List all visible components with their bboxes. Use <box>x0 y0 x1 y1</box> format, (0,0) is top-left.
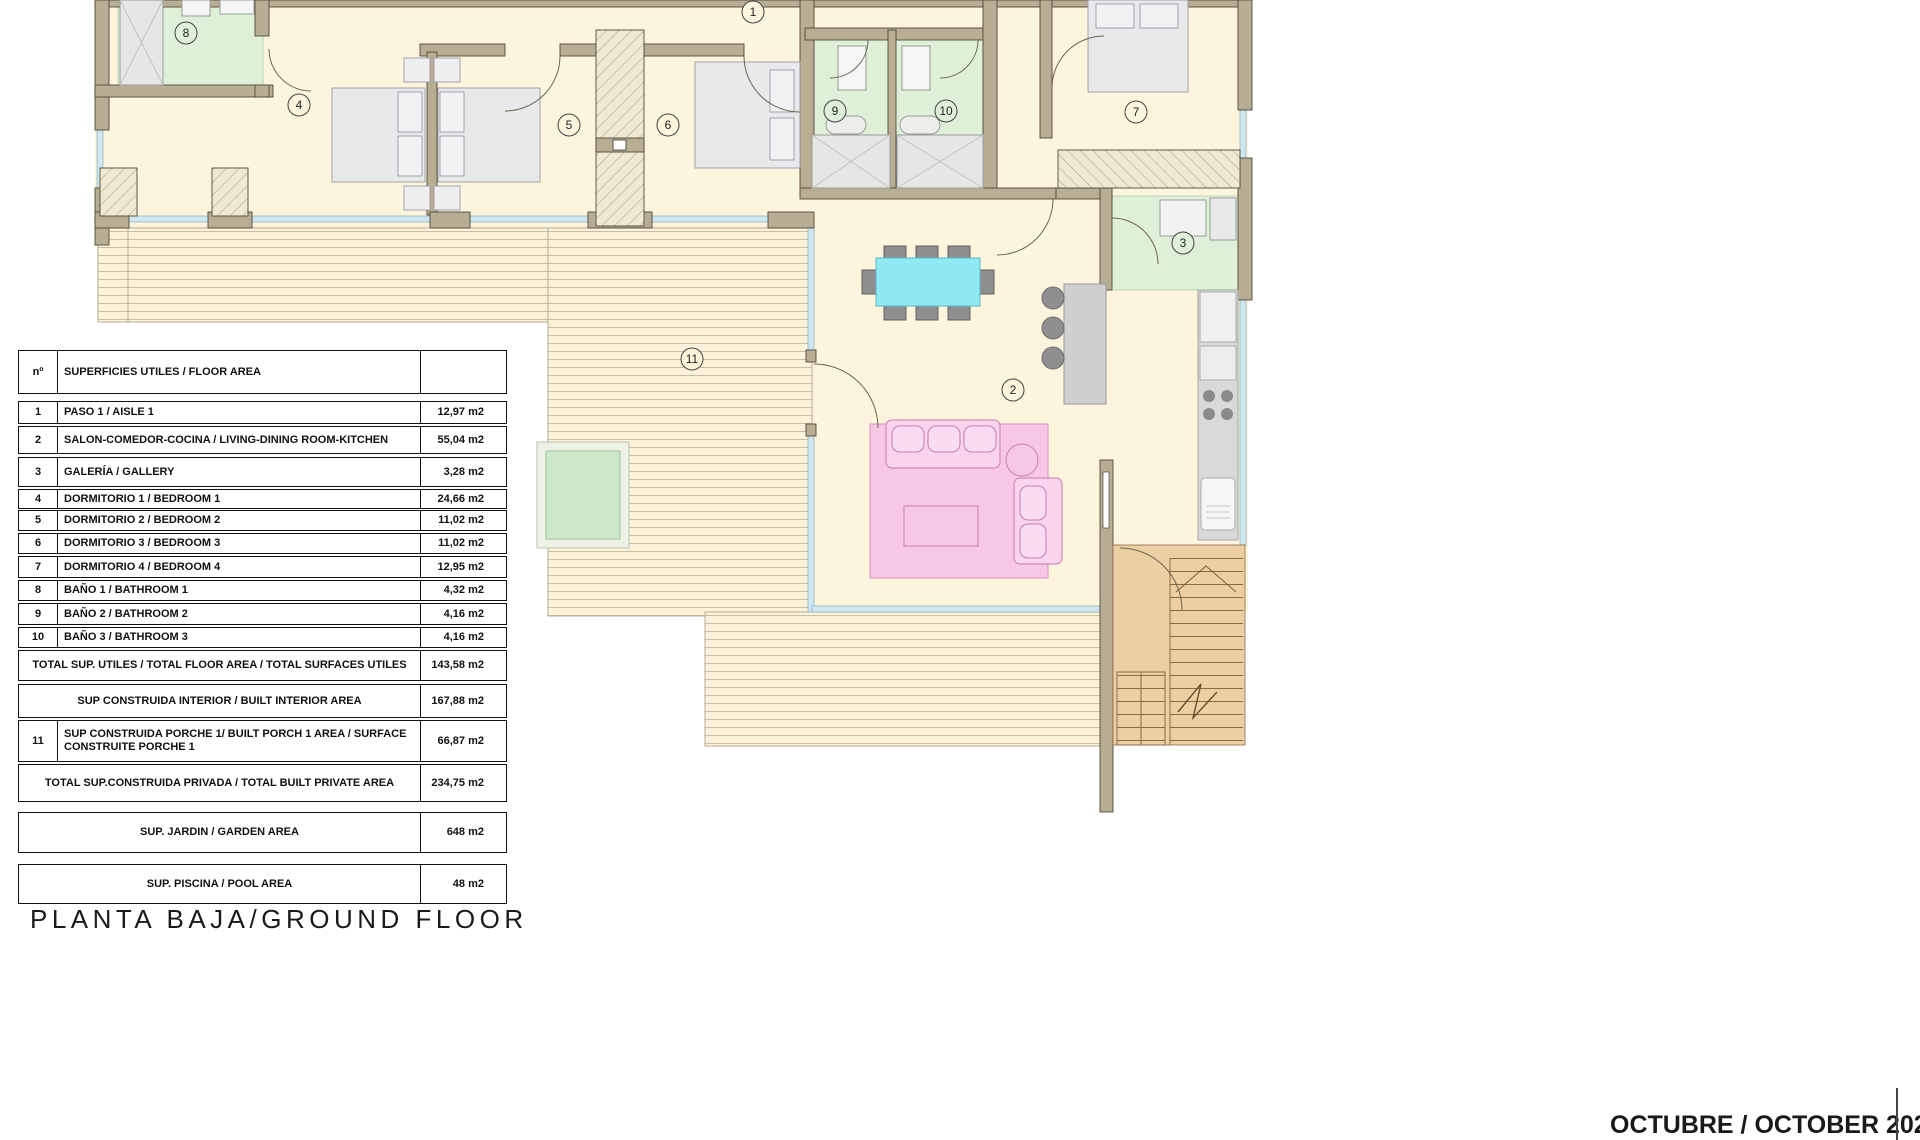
room-number: 2 <box>1010 383 1017 397</box>
row-label: DORMITORIO 1 / BEDROOM 1 <box>58 490 420 508</box>
row-value: 648 m2 <box>420 813 506 852</box>
sofa-set <box>870 420 1062 578</box>
row-num: 9 <box>19 604 58 624</box>
row-num: 7 <box>19 557 58 577</box>
row-label: TOTAL SUP.CONSTRUIDA PRIVADA / TOTAL BUI… <box>19 765 420 801</box>
row-num: 4 <box>19 490 58 508</box>
row-label: GALERÍA / GALLERY <box>58 458 420 486</box>
row-value: 4,16 m2 <box>420 628 506 647</box>
table-row: 5 DORMITORIO 2 / BEDROOM 2 11,02 m2 <box>18 510 507 531</box>
row-num: 5 <box>19 511 58 530</box>
row-label: DORMITORIO 4 / BEDROOM 4 <box>58 557 420 577</box>
room-number: 8 <box>183 26 190 40</box>
row-num: 6 <box>19 534 58 553</box>
sheet-date: OCTUBRE / OCTOBER 2024 <box>1610 1111 1920 1140</box>
row-label: DORMITORIO 2 / BEDROOM 2 <box>58 511 420 530</box>
pool <box>537 442 629 548</box>
room-number: 11 <box>686 352 699 366</box>
room-number: 7 <box>1133 105 1140 119</box>
room-number: 9 <box>832 104 839 118</box>
header-num: nº <box>19 351 58 393</box>
row-value: 12,97 m2 <box>420 402 506 423</box>
row-label: BAÑO 1 / BATHROOM 1 <box>58 581 420 600</box>
room-number: 3 <box>1180 236 1187 250</box>
row-label: PASO 1 / AISLE 1 <box>58 402 420 423</box>
row-value: 12,95 m2 <box>420 557 506 577</box>
table-row: 8 BAÑO 1 / BATHROOM 1 4,32 m2 <box>18 580 507 601</box>
room-number: 1 <box>750 5 757 19</box>
row-num: 1 <box>19 402 58 423</box>
row-label: DORMITORIO 3 / BEDROOM 3 <box>58 534 420 553</box>
row-value: 234,75 m2 <box>420 765 506 801</box>
table-row: 2 SALON-COMEDOR-COCINA / LIVING-DINING R… <box>18 426 507 454</box>
total-private-row: TOTAL SUP.CONSTRUIDA PRIVADA / TOTAL BUI… <box>18 764 507 802</box>
room-number: 4 <box>296 98 303 112</box>
row-value: 11,02 m2 <box>420 534 506 553</box>
row-value: 48 m2 <box>420 865 506 903</box>
table-row: 7 DORMITORIO 4 / BEDROOM 4 12,95 m2 <box>18 556 507 578</box>
row-value: 4,16 m2 <box>420 604 506 624</box>
row-label: SALON-COMEDOR-COCINA / LIVING-DINING ROO… <box>58 427 420 453</box>
porch-row: 11 SUP CONSTRUIDA PORCHE 1/ BUILT PORCH … <box>18 720 507 762</box>
row-value: 55,04 m2 <box>420 427 506 453</box>
row-value: 4,32 m2 <box>420 581 506 600</box>
table-header-row: nº SUPERFICIES UTILES / FLOOR AREA <box>18 350 507 394</box>
table-row: 10 BAÑO 3 / BATHROOM 3 4,16 m2 <box>18 627 507 648</box>
row-value: 167,88 m2 <box>420 685 506 717</box>
area-table: nº SUPERFICIES UTILES / FLOOR AREA 1 PAS… <box>18 350 507 904</box>
sheet-title: PLANTA BAJA/GROUND FLOOR <box>30 904 528 935</box>
row-num: 10 <box>19 628 58 647</box>
room-number: 10 <box>939 104 953 118</box>
row-label: BAÑO 2 / BATHROOM 2 <box>58 604 420 624</box>
table-row: 9 BAÑO 2 / BATHROOM 2 4,16 m2 <box>18 603 507 625</box>
row-num: 3 <box>19 458 58 486</box>
built-interior-row: SUP CONSTRUIDA INTERIOR / BUILT INTERIOR… <box>18 684 507 718</box>
row-label: TOTAL SUP. UTILES / TOTAL FLOOR AREA / T… <box>19 651 420 680</box>
table-row: 4 DORMITORIO 1 / BEDROOM 1 24,66 m2 <box>18 489 507 509</box>
row-value: 3,28 m2 <box>420 458 506 486</box>
header-label: SUPERFICIES UTILES / FLOOR AREA <box>58 351 420 393</box>
row-value: 11,02 m2 <box>420 511 506 530</box>
row-label: SUP CONSTRUIDA INTERIOR / BUILT INTERIOR… <box>19 685 420 717</box>
table-row: 6 DORMITORIO 3 / BEDROOM 3 11,02 m2 <box>18 533 507 554</box>
table-row: 3 GALERÍA / GALLERY 3,28 m2 <box>18 457 507 487</box>
title-block-line <box>1896 1088 1898 1140</box>
pool-area-row: SUP. PISCINA / POOL AREA 48 m2 <box>18 864 507 904</box>
row-value: 66,87 m2 <box>420 721 506 761</box>
row-label: SUP. PISCINA / POOL AREA <box>19 865 420 903</box>
table-row: 1 PASO 1 / AISLE 1 12,97 m2 <box>18 401 507 424</box>
row-label: SUP. JARDIN / GARDEN AREA <box>19 813 420 852</box>
row-value: 143,58 m2 <box>420 651 506 680</box>
row-num: 8 <box>19 581 58 600</box>
row-label: SUP CONSTRUIDA PORCHE 1/ BUILT PORCH 1 A… <box>58 721 420 761</box>
total-floor-area-row: TOTAL SUP. UTILES / TOTAL FLOOR AREA / T… <box>18 650 507 681</box>
room-number: 6 <box>665 118 672 132</box>
header-value <box>420 351 506 393</box>
row-label: BAÑO 3 / BATHROOM 3 <box>58 628 420 647</box>
garden-area-row: SUP. JARDIN / GARDEN AREA 648 m2 <box>18 812 507 853</box>
stairs <box>1113 545 1245 745</box>
wall-slot <box>1103 472 1109 528</box>
row-value: 24,66 m2 <box>420 490 506 508</box>
row-num: 11 <box>19 721 58 761</box>
row-num: 2 <box>19 427 58 453</box>
room-number: 5 <box>566 118 573 132</box>
